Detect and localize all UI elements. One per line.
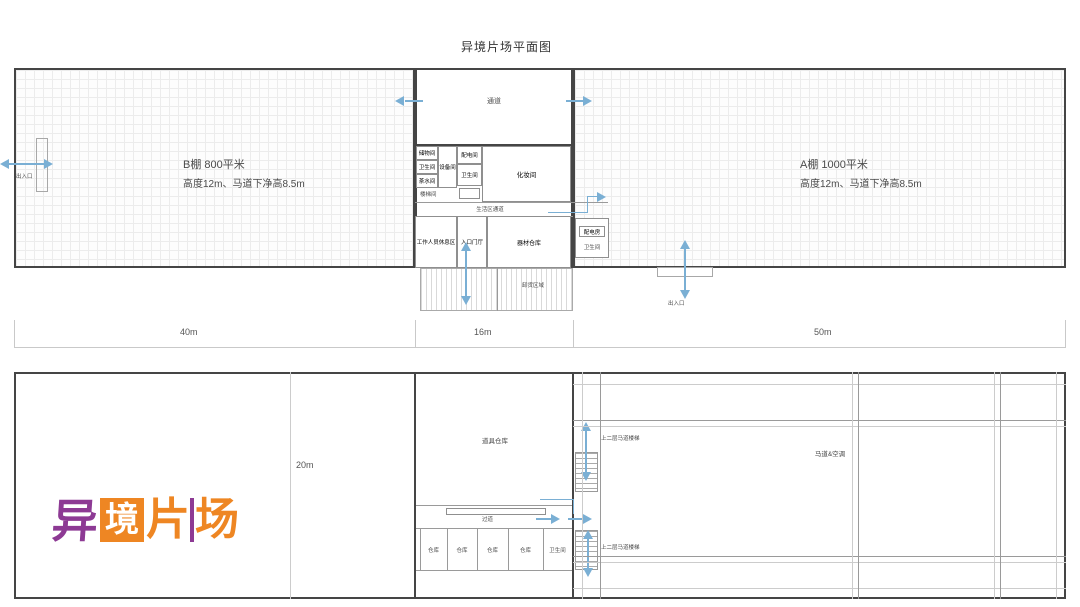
a-door-arrow-icon bbox=[684, 248, 686, 292]
room-toilet-2-label: 卫生间 bbox=[461, 171, 478, 179]
floor-plan-canvas: 异境片场平面图 B棚 800平米 高度12m、马道下净高8.5m A棚 1000… bbox=[0, 0, 1080, 607]
lower-connector-line bbox=[540, 499, 574, 500]
wall bbox=[572, 372, 574, 599]
lower-arrowhead-1-icon bbox=[551, 514, 560, 524]
dim-20m: 20m bbox=[296, 460, 314, 470]
room-props-label: 器材仓库 bbox=[517, 238, 541, 247]
room-props: 器材仓库 bbox=[487, 216, 571, 268]
rooms-row-line bbox=[416, 528, 572, 529]
corridor-label: 通道 bbox=[468, 96, 520, 106]
lower-room-label: 卫生间 bbox=[543, 546, 572, 554]
catwalk-line bbox=[573, 384, 1066, 385]
stair-lower-arrowhead-down-icon bbox=[583, 568, 593, 577]
room-small-box bbox=[459, 188, 480, 199]
corridor-right-arrow-icon bbox=[566, 100, 584, 102]
warehouse-label: 道具仓库 bbox=[460, 435, 530, 445]
catwalk-line bbox=[1056, 372, 1057, 599]
stair-lower-arrowhead-up-icon bbox=[583, 530, 593, 539]
dimension-baseline bbox=[14, 347, 1066, 348]
studio-b-spec: 高度12m、马道下净高8.5m bbox=[183, 175, 305, 190]
left-entrance-arrow-icon bbox=[8, 163, 46, 165]
catwalk-line bbox=[994, 372, 995, 599]
a-door-arrowhead-up-icon bbox=[680, 240, 690, 249]
catwalk-line bbox=[573, 556, 1066, 557]
catwalk-line bbox=[573, 588, 1066, 589]
annex-connector-line bbox=[587, 196, 588, 213]
lower-room-label: 仓库 bbox=[508, 546, 543, 554]
left-entrance-arrowhead-icon bbox=[44, 159, 53, 169]
room-makeup-label: 化妆间 bbox=[517, 169, 537, 179]
dock-divider bbox=[497, 268, 498, 311]
lower-arrowhead-2-icon bbox=[583, 514, 592, 524]
room-rest: 工作人员休息区 bbox=[415, 216, 457, 268]
page-title: 异境片场平面图 bbox=[461, 38, 552, 55]
annex-power-label: 配电房 bbox=[584, 228, 601, 236]
lower-plan-area bbox=[14, 372, 1066, 599]
catwalk-line bbox=[852, 372, 853, 599]
dim-50m: 50m bbox=[814, 327, 832, 337]
dock-label: 卸货区域 bbox=[500, 281, 566, 289]
corridor-left-arrow-icon bbox=[405, 100, 423, 102]
wall bbox=[414, 372, 416, 599]
dock-arrow-icon bbox=[465, 250, 467, 298]
room-equipment-label: 设备间 bbox=[439, 163, 456, 171]
dimension-tick bbox=[415, 320, 416, 347]
stair-lower-label: 上二层马道楼梯 bbox=[601, 543, 640, 551]
a-door-arrowhead-down-icon bbox=[680, 290, 690, 299]
catwalk-line bbox=[573, 562, 1066, 563]
stair-upper-label: 上二层马道楼梯 bbox=[601, 434, 640, 442]
dock-arrowhead-down-icon bbox=[461, 296, 471, 305]
room-rest-label: 工作人员休息区 bbox=[417, 238, 456, 246]
logo-char-2: 境 bbox=[100, 498, 144, 542]
counter-box bbox=[446, 508, 546, 515]
lower-corridor-label: 过道 bbox=[482, 515, 493, 523]
logo-char-1: 异 bbox=[50, 498, 99, 544]
studio-b-name: B棚 800平米 bbox=[183, 156, 305, 172]
corridor-right-arrowhead-icon bbox=[583, 96, 592, 106]
hallway-line bbox=[415, 202, 608, 203]
room-toilet-2: 卫生间 bbox=[457, 164, 482, 186]
room-toilet-1-label: 卫生间 bbox=[419, 163, 436, 171]
annex-power-box: 配电房 bbox=[579, 226, 605, 237]
room-storage: 储物间 bbox=[416, 146, 438, 160]
left-entrance-label: 出入口 bbox=[16, 172, 33, 180]
a-door-label: 出入口 bbox=[668, 299, 685, 307]
rooms-row-line bbox=[416, 570, 572, 571]
stair-upper-arrow-icon bbox=[585, 430, 587, 474]
annex-toilet-label: 卫生间 bbox=[577, 243, 607, 251]
room-equipment: 设备间 bbox=[438, 146, 457, 188]
brand-logo: 异 境 片 场 bbox=[52, 498, 239, 544]
studio-a-label: A棚 1000平米 高度12m、马道下净高8.5m bbox=[800, 156, 922, 190]
annex-arrowhead-icon bbox=[597, 192, 606, 202]
room-pantry: 茶水间 bbox=[416, 174, 438, 188]
lower-room-label: 仓库 bbox=[477, 546, 508, 554]
studio-a-name: A棚 1000平米 bbox=[800, 156, 922, 172]
catwalk-line bbox=[573, 426, 1066, 427]
lower-room-label: 仓库 bbox=[447, 546, 477, 554]
corridor-top-line bbox=[416, 505, 572, 506]
dim-40m: 40m bbox=[180, 327, 198, 337]
logo-char-3: 片 bbox=[146, 498, 190, 542]
catwalk-line bbox=[600, 372, 601, 599]
corridor-left-arrowhead-icon bbox=[395, 96, 404, 106]
studio-a-spec: 高度12m、马道下净高8.5m bbox=[800, 175, 922, 190]
annex-room bbox=[575, 218, 609, 258]
studio-b-label: B棚 800平米 高度12m、马道下净高8.5m bbox=[183, 156, 305, 190]
room-pantry-label: 茶水间 bbox=[419, 177, 436, 185]
dim-16m: 16m bbox=[474, 327, 492, 337]
room-makeup: 化妆间 bbox=[482, 146, 571, 202]
annex-connector-line bbox=[548, 212, 588, 213]
lower-plan-gridline bbox=[290, 372, 291, 599]
room-power-label: 配电间 bbox=[461, 151, 478, 159]
logo-char-4: 场 bbox=[190, 498, 239, 542]
dock-arrowhead-up-icon bbox=[461, 242, 471, 251]
dimension-tick bbox=[573, 320, 574, 347]
room-stair-label: 楼梯间 bbox=[420, 190, 437, 198]
catwalk-line bbox=[1000, 372, 1001, 599]
lower-arrow-1-icon bbox=[536, 518, 552, 520]
catwalk-line bbox=[858, 372, 859, 599]
lower-room-label: 仓库 bbox=[420, 546, 447, 554]
dimension-tick bbox=[14, 320, 15, 347]
dimension-tick bbox=[1065, 320, 1066, 347]
stair-lower-arrow-icon bbox=[587, 538, 589, 570]
hallway-label: 生活区通道 bbox=[455, 205, 525, 213]
catwalk-line bbox=[582, 372, 583, 599]
room-toilet-1: 卫生间 bbox=[416, 160, 438, 174]
room-storage-label: 储物间 bbox=[419, 149, 436, 157]
catwalk-line bbox=[573, 420, 1066, 421]
room-power: 配电间 bbox=[457, 146, 482, 164]
catwalk-label: 马道&空调 bbox=[790, 448, 870, 458]
lower-connector-line bbox=[573, 499, 574, 514]
left-entrance-arrowhead-icon bbox=[0, 159, 9, 169]
